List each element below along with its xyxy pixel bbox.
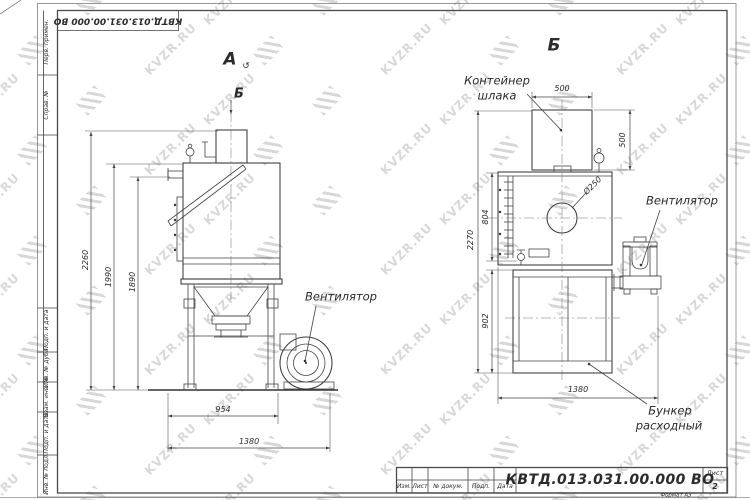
left-strip-label-vzam-inv: Взам. инв. №: [44, 377, 50, 418]
dim-2270-label: 2270: [467, 230, 475, 250]
view-a-section-label: Б: [234, 88, 244, 101]
dim-954-label: 954: [215, 406, 230, 414]
dim-2260-label: 2260: [82, 250, 90, 270]
left-strip-label-podp-data-2: Подп. и дата: [44, 413, 50, 454]
title-block-col-docnum: № докум.: [433, 484, 463, 490]
left-strip-label-perv-primen: Перв. примен.: [44, 19, 50, 64]
dim-500-width-label: 500: [554, 85, 569, 93]
dim-902-label: 902: [482, 313, 490, 328]
dim-804-label: 804: [482, 209, 490, 224]
sheet-word-label: Лист: [707, 470, 723, 477]
dim-diameter-250-label: Ø250: [583, 176, 604, 197]
engineering-drawing: KVZR.RUKVZR.RUKVZR.RUKVZR.RUKVZR.RUKVZR.…: [0, 0, 750, 500]
dim-1890-label: 1890: [129, 272, 137, 292]
slag-container-label-line2: шлака: [478, 90, 517, 102]
hopper-label-line1: Бункер: [648, 405, 692, 417]
fan-label-view-b: Вентилятор: [646, 195, 718, 207]
title-block-col-list: Лист: [412, 484, 427, 490]
dim-500-height-label: 500: [619, 132, 627, 147]
dim-1380-label-view-a: 1380: [239, 438, 259, 446]
view-a-rotated-icon: ↺: [242, 63, 250, 72]
left-strip-label-sprav-n: Справ. №: [44, 90, 50, 119]
title-block-col-podp: Подп.: [472, 484, 490, 490]
sheet-number: 2: [712, 483, 718, 491]
format-note: Формат А3: [660, 493, 691, 499]
view-a-label: А: [223, 52, 236, 69]
hopper-label-line2: расходный: [636, 420, 703, 432]
left-strip-label-inv-podl: Инв. № подл.: [44, 453, 50, 494]
filing-box-designation: КВТД.013.031.00.000 ВО: [54, 16, 183, 25]
left-strip-label-podp-data-1: Подп. и дата: [44, 310, 50, 351]
title-block-designation: КВТД.013.031.00.000 ВО: [506, 473, 715, 487]
slag-container-label-line1: Контейнер: [464, 75, 530, 87]
title-block-col-izm: Изм.: [397, 484, 411, 490]
dim-1380-label-view-b: 1380: [568, 386, 588, 394]
dim-1990-label: 1990: [105, 267, 113, 287]
view-b-label: Б: [548, 38, 561, 55]
title-block-col-data: Дата: [497, 484, 513, 490]
annotation-layer: КВТД.013.031.00.000 ВО Перв. примен. Спр…: [0, 0, 750, 500]
fan-label-view-a: Вентилятор: [305, 291, 377, 303]
